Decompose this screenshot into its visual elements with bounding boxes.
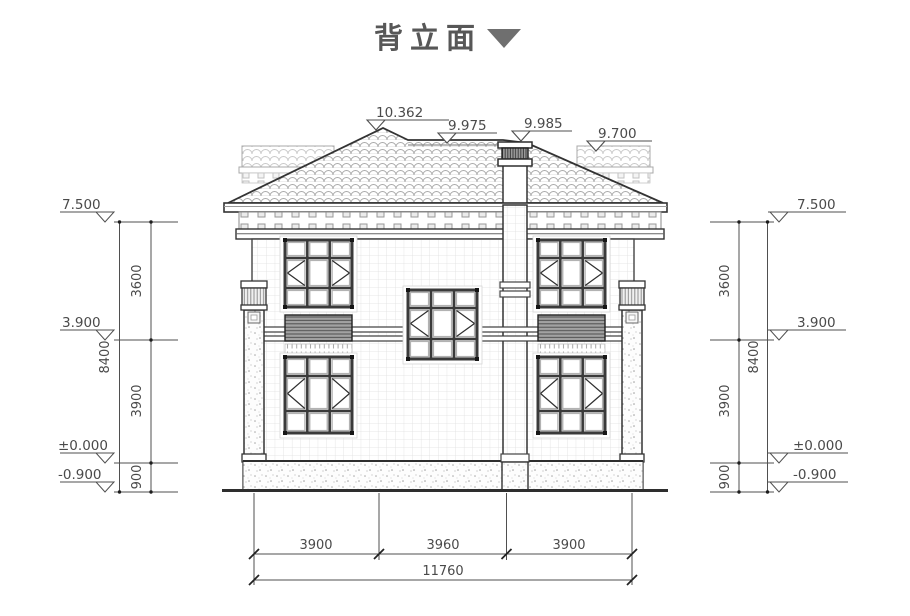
- window-corner-dot: [603, 355, 607, 359]
- window-corner-dot: [475, 288, 479, 292]
- left-dim-segment: 3600: [130, 264, 145, 297]
- window-corner-dot: [406, 357, 410, 361]
- window-corner-dot: [283, 431, 287, 435]
- eave-cornice: [224, 203, 667, 239]
- louver-panel-right: [538, 315, 605, 354]
- window-corner-dot: [475, 357, 479, 361]
- left-dim-total: 8400: [98, 340, 113, 373]
- dim-bottom: 3900 3960 3900 11760: [249, 493, 637, 585]
- bottom-dim-segment: 3960: [426, 538, 459, 553]
- column-capital: [620, 288, 644, 307]
- dim-left: 7.500 3.900 ±0.000 -0.900 8400 3600 3900…: [58, 197, 178, 494]
- down-triangle-icon: [487, 29, 521, 48]
- window: [280, 353, 357, 438]
- roof-level-label: 9.700: [598, 126, 637, 142]
- left-level-label: -0.900: [58, 467, 102, 483]
- window-corner-dot: [283, 305, 287, 309]
- louver-panel-left: [285, 315, 352, 354]
- bottom-dim-segment: 3900: [552, 538, 585, 553]
- elevation-drawing-page: 背立面: [0, 0, 910, 616]
- window-corner-dot: [603, 305, 607, 309]
- window-corner-dot: [603, 238, 607, 242]
- chimney: [498, 142, 532, 205]
- right-level-label: 3.900: [797, 315, 836, 331]
- left-level-label: 3.900: [62, 315, 101, 331]
- window-corner-dot: [536, 305, 540, 309]
- level-marker: 9.985: [512, 116, 572, 141]
- right-level-label: 7.500: [797, 197, 836, 213]
- window-corner-dot: [536, 355, 540, 359]
- roof-level-label: 10.362: [376, 105, 423, 121]
- right-dim-segment: 3600: [718, 264, 733, 297]
- window-corner-dot: [536, 431, 540, 435]
- window-corner-dot: [350, 305, 354, 309]
- page-title: 背立面: [374, 21, 482, 55]
- left-dim-segment: 3900: [130, 384, 145, 417]
- dentil-frieze: [239, 212, 661, 229]
- window: [533, 353, 610, 438]
- window-frame: [285, 357, 352, 433]
- window-frame: [538, 240, 605, 307]
- column-left: [241, 281, 267, 490]
- bottom-dim-total: 11760: [422, 564, 463, 579]
- window: [280, 236, 357, 312]
- dim-right: 7.500 3.900 ±0.000 -0.900 8400 3600 3900…: [710, 197, 848, 494]
- chimney-pilaster: [500, 205, 530, 461]
- drawing-title: 背立面: [374, 21, 521, 55]
- column-capital: [242, 288, 266, 307]
- window-frame: [538, 357, 605, 433]
- roof-level-label: 9.975: [448, 118, 487, 134]
- window-frame: [408, 290, 477, 359]
- window-corner-dot: [350, 238, 354, 242]
- window-corner-dot: [603, 431, 607, 435]
- right-level-label: -0.900: [793, 467, 837, 483]
- chimney-vent: [502, 148, 528, 159]
- window-corner-dot: [283, 238, 287, 242]
- right-dim-segment: 900: [718, 465, 733, 490]
- left-level-label: 7.500: [62, 197, 101, 213]
- window-corner-dot: [350, 355, 354, 359]
- bottom-dim-segment: 3900: [299, 538, 332, 553]
- window-corner-dot: [350, 431, 354, 435]
- window: [533, 236, 610, 312]
- window-corner-dot: [536, 238, 540, 242]
- window: [403, 286, 482, 364]
- left-level-label: ±0.000: [58, 438, 108, 454]
- window-frame: [285, 240, 352, 307]
- elevation-drawing-canvas: 背立面: [0, 0, 910, 616]
- window-corner-dot: [283, 355, 287, 359]
- window-corner-dot: [406, 288, 410, 292]
- right-dim-segment: 3900: [718, 384, 733, 417]
- level-marker: 10.362: [367, 105, 449, 130]
- column-right: [619, 281, 645, 490]
- roof-level-label: 9.985: [524, 116, 563, 132]
- right-level-label: ±0.000: [793, 438, 843, 454]
- right-dim-total: 8400: [747, 340, 762, 373]
- left-dim-segment: 900: [130, 465, 145, 490]
